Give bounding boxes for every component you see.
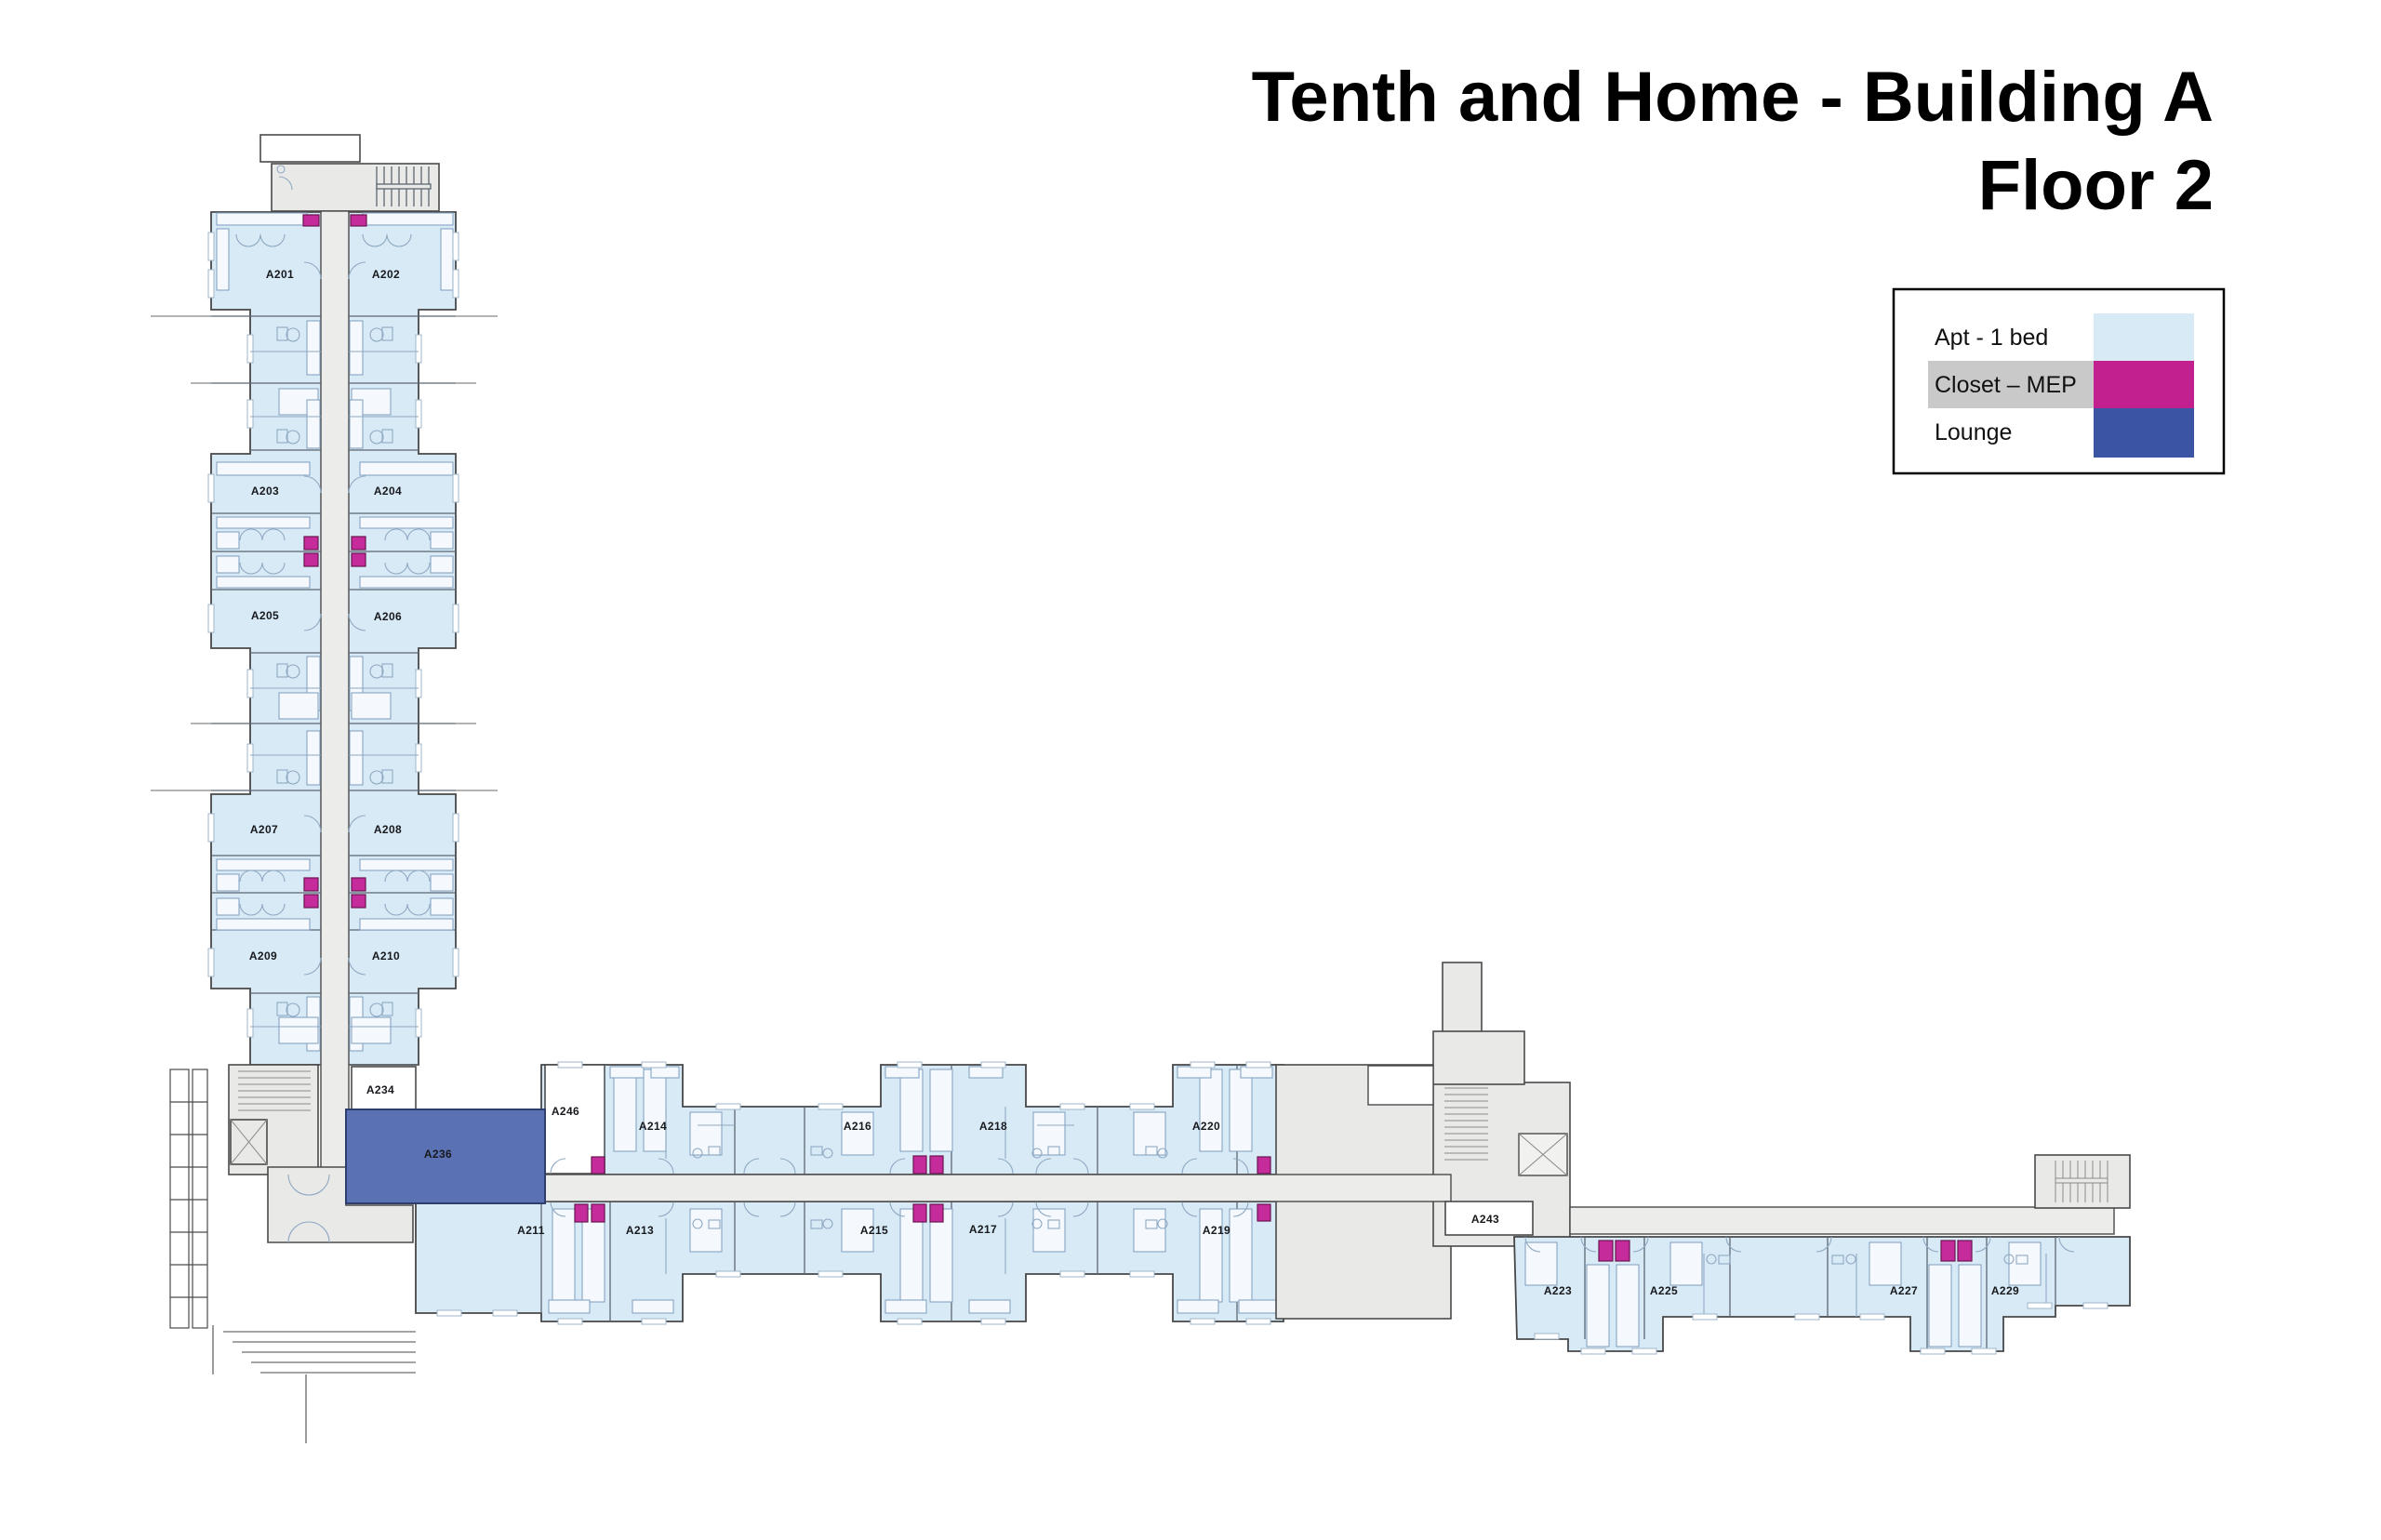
svg-text:A216: A216 xyxy=(844,1120,871,1133)
svg-text:A213: A213 xyxy=(626,1224,654,1237)
svg-text:Closet – MEP: Closet – MEP xyxy=(1935,372,2077,398)
svg-text:A234: A234 xyxy=(366,1083,394,1096)
svg-text:A210: A210 xyxy=(372,949,400,962)
svg-text:A204: A204 xyxy=(374,485,402,498)
svg-text:Lounge: Lounge xyxy=(1935,419,2012,445)
svg-text:A215: A215 xyxy=(860,1224,888,1237)
svg-text:A209: A209 xyxy=(249,949,277,962)
svg-text:A223: A223 xyxy=(1544,1284,1572,1297)
svg-text:A211: A211 xyxy=(517,1224,545,1237)
svg-text:A207: A207 xyxy=(250,823,278,836)
svg-text:A225: A225 xyxy=(1650,1284,1678,1297)
svg-text:A227: A227 xyxy=(1890,1284,1918,1297)
svg-text:A243: A243 xyxy=(1471,1213,1499,1226)
svg-text:A203: A203 xyxy=(251,485,279,498)
svg-text:A246: A246 xyxy=(552,1105,579,1118)
svg-text:A201: A201 xyxy=(266,268,294,281)
svg-text:Apt - 1 bed: Apt - 1 bed xyxy=(1935,325,2048,351)
svg-text:A217: A217 xyxy=(969,1223,997,1236)
svg-text:A208: A208 xyxy=(374,823,402,836)
svg-text:Floor 2: Floor 2 xyxy=(1978,146,2214,225)
svg-text:A218: A218 xyxy=(979,1120,1007,1133)
svg-text:A236: A236 xyxy=(424,1148,452,1161)
svg-text:A214: A214 xyxy=(639,1120,667,1133)
svg-text:A219: A219 xyxy=(1203,1224,1230,1237)
svg-text:A229: A229 xyxy=(1991,1284,2019,1297)
svg-text:A202: A202 xyxy=(372,268,400,281)
svg-text:A206: A206 xyxy=(374,610,402,623)
svg-text:A220: A220 xyxy=(1192,1120,1220,1133)
svg-text:A205: A205 xyxy=(251,609,279,622)
svg-text:Tenth and Home - Building A: Tenth and Home - Building A xyxy=(1252,58,2214,137)
